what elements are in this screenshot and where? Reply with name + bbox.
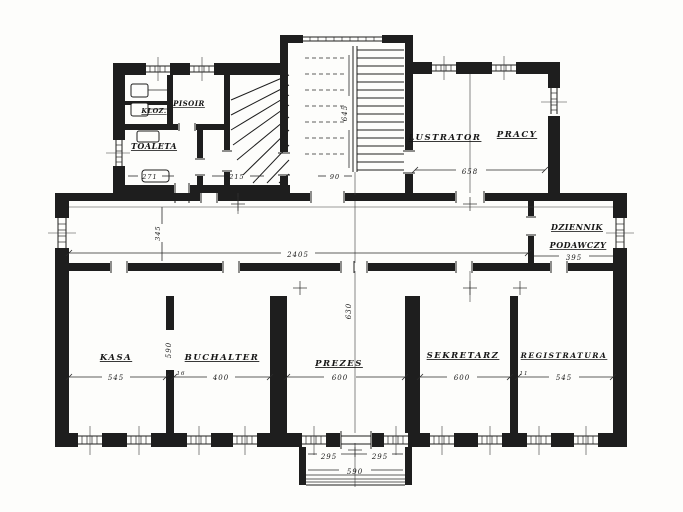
floor-plan-svg: PISOIR KLOZ. TOALETA LUSTRATOR PRACY DZI…: [0, 0, 683, 512]
dim-stair-width: 215: [228, 173, 244, 181]
dim-porch-width: 590: [347, 468, 363, 476]
dim-prezes-width: 600: [332, 374, 348, 382]
dim-lustrator-width: 658: [462, 168, 478, 176]
dim-mark-buchalter: 16: [177, 371, 186, 377]
room-label-podawczy: PODAWCZY: [549, 240, 607, 250]
dim-mark-registratura: 11: [520, 371, 529, 377]
window-symbol: [303, 35, 382, 43]
room-label-toaleta: TOALETA: [131, 141, 177, 151]
dim-landing-width: 90: [330, 173, 340, 181]
dim-toilet-width: 271: [141, 173, 157, 181]
dim-corridor-width: 345: [154, 225, 162, 240]
staircase-main: [305, 46, 404, 172]
sanitary-fixtures: [131, 84, 169, 182]
room-label-sekretarz: SEKRETARZ: [427, 351, 500, 361]
main-block-walls: [55, 193, 627, 447]
dim-kasa-width: 545: [108, 374, 124, 382]
dim-porch-left: 295: [320, 453, 337, 461]
dim-dziennik-width: 395: [566, 254, 582, 262]
dim-sekretarz-width: 600: [454, 374, 470, 382]
dim-corridor-length: 2405: [286, 251, 309, 259]
dim-stair-run: 645: [341, 105, 349, 121]
dim-prezes-depth: 630: [345, 303, 353, 319]
dim-porch-right: 295: [371, 453, 388, 461]
room-label-dziennik: DZIENNIK: [550, 222, 603, 232]
room-label-kasa: KASA: [99, 353, 132, 363]
room-label-kloz: KLOZ.: [140, 107, 166, 115]
dim-buchalter-width: 400: [212, 374, 229, 382]
room-label-buchalter: BUCHALTER: [184, 353, 260, 363]
office-wing-walls: [406, 62, 560, 193]
room-label-registratura: REGISTRATURA: [520, 351, 608, 360]
door-openings: [111, 123, 567, 449]
entrance-porch: [299, 447, 412, 485]
floor-plan-drawing: PISOIR KLOZ. TOALETA LUSTRATOR PRACY DZI…: [0, 0, 683, 512]
room-label-prezes: PREZES: [314, 359, 363, 369]
dim-room-depth: 590: [165, 342, 173, 358]
dim-registratura-width: 545: [556, 374, 572, 382]
room-label-pisoir: PISOIR: [172, 99, 205, 108]
room-label-lustrator: LUSTRATOR: [408, 133, 482, 143]
room-label-pracy: PRACY: [496, 130, 537, 140]
